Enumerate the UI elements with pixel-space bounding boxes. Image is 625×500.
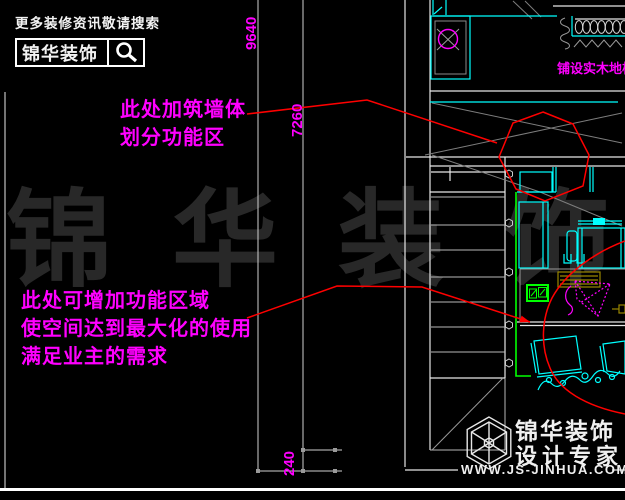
wall-note-line2: 划分功能区 [120, 124, 246, 152]
annotation-wall-note: 此处加筑墙体 划分功能区 [120, 96, 246, 152]
lamp-cross [437, 29, 459, 50]
promo-header: 更多装修资讯敬请搜索 锦华装饰 [15, 12, 160, 67]
red-highlight-curve [543, 241, 625, 414]
function-note-line3: 满足业主的需求 [21, 343, 252, 371]
red-leader-arrowhead [519, 316, 530, 323]
tile-scallops [575, 21, 625, 34]
plant-symbol [566, 281, 610, 316]
promo-tagline: 更多装修资讯敬请搜索 [15, 12, 160, 32]
stair-treads [430, 197, 505, 450]
search-icon [109, 40, 143, 65]
footer-website: WWW.JS-JINHUA.COM [461, 462, 625, 477]
desk-monitor-symbol [593, 218, 605, 225]
cad-floorplan-screenshot: 锦华装饰 [0, 0, 625, 500]
dimension-9640: 9640 [243, 17, 260, 50]
study-room-border [520, 269, 625, 322]
sheet-border-bottom [0, 488, 625, 491]
function-note-line2: 使空间达到最大化的使用 [21, 315, 252, 343]
brand-name: 锦华装饰 [17, 40, 107, 66]
wall-note-line1: 此处加筑墙体 [120, 96, 246, 124]
red-leader-upper [247, 100, 497, 143]
function-note-line1: 此处可增加功能区域 [21, 287, 252, 315]
dimension-7260: 7260 [289, 104, 306, 137]
dimension-lines [258, 0, 342, 471]
level-markers [506, 170, 513, 367]
floor-material-label: 铺设实木地板 [557, 58, 625, 77]
red-leader-lower [247, 286, 530, 322]
annotation-function-note: 此处可增加功能区域 使空间达到最大化的使用 满足业主的需求 [21, 287, 252, 371]
olive-shelf [558, 272, 625, 313]
dimension-240: 240 [281, 451, 298, 476]
red-highlights [247, 100, 625, 414]
brand-search-box: 锦华装饰 [15, 38, 145, 67]
